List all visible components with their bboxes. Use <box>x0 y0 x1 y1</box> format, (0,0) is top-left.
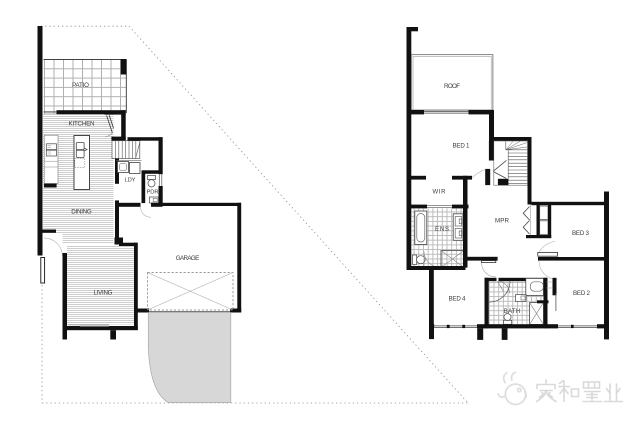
svg-text:GARAGE: GARAGE <box>176 255 200 262</box>
svg-text:BED 1: BED 1 <box>453 143 471 150</box>
svg-text:DINING: DINING <box>71 209 92 216</box>
svg-text:BED 2: BED 2 <box>573 290 591 297</box>
svg-text:WIR: WIR <box>433 189 447 195</box>
svg-text:LDY: LDY <box>125 178 136 184</box>
svg-text:BED 3: BED 3 <box>572 230 590 237</box>
svg-text:ENS: ENS <box>435 227 449 233</box>
svg-text:PATIO: PATIO <box>72 82 89 89</box>
svg-text:PDR: PDR <box>147 190 159 196</box>
svg-text:KITCHEN: KITCHEN <box>69 121 95 128</box>
svg-text:BED 4: BED 4 <box>449 295 467 302</box>
svg-text:ROOF: ROOF <box>444 83 460 90</box>
svg-text:LIVING: LIVING <box>94 290 113 297</box>
svg-text:MPR: MPR <box>495 217 510 224</box>
